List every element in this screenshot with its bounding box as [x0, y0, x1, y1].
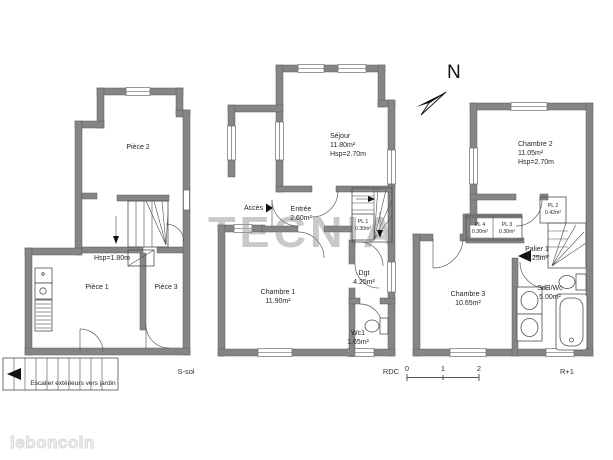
door-arc: [166, 224, 184, 242]
room-label-pl3: PL 3 0.30m²: [499, 222, 515, 236]
floor-label-rdc: RDC: [383, 367, 399, 376]
window: [470, 148, 478, 184]
room-label-sejour: Séjour 11.80m² Hsp=2.70m: [330, 132, 366, 159]
north-arrow-icon: [416, 92, 446, 115]
north-label: N: [447, 62, 461, 84]
window: [450, 349, 486, 357]
room-label-piece1: Pièce 1: [85, 283, 108, 292]
window: [184, 190, 190, 210]
ceiling-height-note: Hsp=1.80m: [94, 254, 130, 263]
room-label-dgt: Dgt 4.25m²: [353, 269, 375, 287]
access-label: Accès: [244, 204, 263, 213]
bathtub: [556, 294, 587, 350]
window: [228, 126, 236, 160]
room-label-pl2: PL 2 0.42m²: [545, 203, 561, 217]
room-label-chambre2: Chambre 2 11.05m² Hsp=2.70m: [518, 140, 554, 167]
window: [338, 65, 366, 73]
window: [126, 88, 150, 96]
door-arc: [516, 200, 542, 226]
window: [276, 122, 284, 160]
room-label-pl1: PL 1 0.30m²: [355, 219, 371, 233]
room-label-pl4: PL 4 0.30m²: [472, 222, 488, 236]
floor-label-r1: R+1: [560, 367, 574, 376]
room-label-sdbwc: SdB/Wc 5.00m²: [537, 284, 562, 302]
scale-tick-0: 0: [405, 364, 409, 373]
room-label-palier1: Palier 1 1.25m²: [525, 245, 549, 263]
floor-label-ssol: S-sol: [177, 367, 194, 376]
window: [298, 65, 324, 73]
room-label-chambre1: Chambre 1 11.90m²: [261, 288, 296, 306]
floorplan-image: Pièce 2 Hsp=1.80m Pièce 1 Pièce 3 Escali…: [0, 0, 613, 460]
toilet: [559, 274, 586, 290]
exterior-stairs-note: Escalier extérieurs vers jardin: [30, 379, 115, 388]
stair-direction-arrow: [113, 236, 119, 244]
kitchen-fixtures: [35, 268, 52, 331]
room-label-entree: Entrée 2.60m²: [290, 205, 312, 223]
room-label-wc1: Wc1 1.65m²: [347, 329, 369, 347]
scale-tick-1: 1: [441, 364, 445, 373]
scale-tick-2: 2: [477, 364, 481, 373]
door-arc: [146, 325, 169, 348]
window: [511, 103, 547, 111]
window: [258, 349, 292, 357]
door-arc: [433, 238, 463, 268]
room-label-piece3: Pièce 3: [154, 283, 177, 292]
window: [388, 262, 396, 292]
window: [388, 150, 396, 184]
room-label-piece2: Pièce 2: [126, 143, 149, 152]
room-label-chambre3: Chambre 3 10.65m²: [451, 290, 486, 308]
plan-ssol: [3, 88, 190, 391]
leboncoin-logo: leboncoin: [10, 433, 95, 453]
scale-bar-line: [407, 374, 479, 381]
